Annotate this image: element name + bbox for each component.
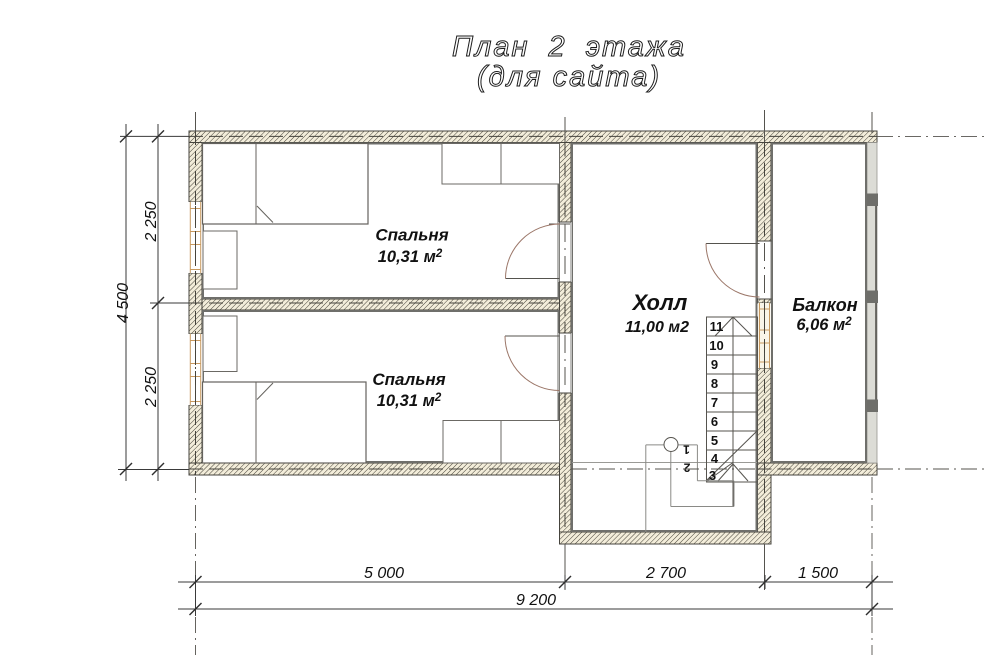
svg-text:Холл: Холл <box>631 290 688 315</box>
svg-text:6: 6 <box>711 414 718 429</box>
svg-text:4: 4 <box>711 451 719 466</box>
svg-text:2 250: 2 250 <box>143 367 160 408</box>
svg-text:5: 5 <box>711 433 718 448</box>
svg-text:3: 3 <box>709 468 716 483</box>
svg-text:2 700: 2 700 <box>645 565 686 582</box>
svg-text:10: 10 <box>709 338 723 353</box>
svg-text:6,06 м2: 6,06 м2 <box>796 316 852 334</box>
svg-text:7: 7 <box>711 395 718 410</box>
svg-text:Спальня: Спальня <box>375 226 448 245</box>
svg-text:10,31 м2: 10,31 м2 <box>378 248 443 266</box>
svg-text:9 200: 9 200 <box>516 592 556 609</box>
svg-text:5 000: 5 000 <box>364 565 404 582</box>
svg-text:(для сайта): (для сайта) <box>477 61 661 93</box>
svg-text:Спальня: Спальня <box>372 370 445 389</box>
svg-text:11: 11 <box>710 319 724 334</box>
svg-text:2 250: 2 250 <box>143 201 160 242</box>
svg-text:8: 8 <box>711 376 718 391</box>
svg-text:2: 2 <box>683 461 690 475</box>
svg-text:1 500: 1 500 <box>798 565 838 582</box>
svg-text:Балкон: Балкон <box>792 295 857 315</box>
svg-text:9: 9 <box>711 357 718 372</box>
svg-text:1: 1 <box>683 443 690 457</box>
svg-text:4 500: 4 500 <box>115 283 132 323</box>
svg-text:10,31 м2: 10,31 м2 <box>377 392 442 410</box>
svg-text:11,00 м2: 11,00 м2 <box>625 319 689 336</box>
svg-text:План 2 этажа: План 2 этажа <box>452 31 686 63</box>
